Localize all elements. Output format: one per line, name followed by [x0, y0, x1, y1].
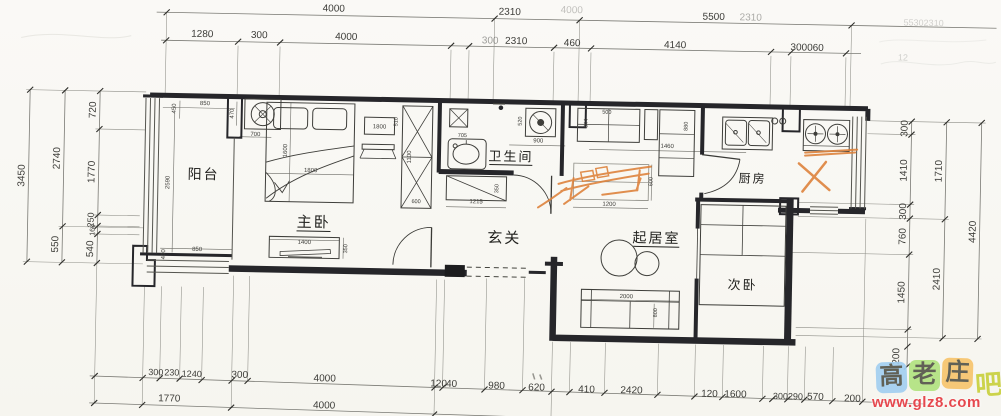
- floor-plan-drawing: 4000231040005500231055302310128030040003…: [0, 0, 1001, 416]
- dimension-label: 510: [394, 117, 400, 126]
- furniture: [241, 99, 850, 333]
- dimension-label: 2310: [499, 7, 522, 18]
- walls: [132, 95, 868, 347]
- dimension-label: 500: [602, 110, 611, 116]
- dimension-label: 300: [482, 35, 499, 46]
- dimension-label: 4000: [313, 400, 336, 411]
- dimension-label: 540: [85, 240, 96, 257]
- dimension-label: 570: [807, 392, 824, 403]
- dimension-label: 450: [172, 103, 178, 114]
- dimension-label: 620: [528, 382, 545, 393]
- dimension-label: 230: [164, 367, 179, 377]
- scan-artifacts: [15, 22, 997, 389]
- dimension-label: 2310: [739, 12, 762, 23]
- dimension-label: 705: [458, 133, 467, 139]
- dimension-label: 300: [148, 367, 163, 377]
- dimension-label: 4000: [561, 5, 584, 16]
- kitchen-sink: [722, 117, 773, 150]
- dimension-label: 720: [88, 101, 99, 118]
- dimension-label: 2740: [52, 147, 63, 170]
- dimension-label: 2410: [931, 267, 942, 290]
- dimension-label: 200: [844, 393, 861, 404]
- dimension-label: 430: [161, 249, 167, 260]
- room-label: 起居室: [632, 229, 680, 246]
- dimension-label: 850: [192, 247, 203, 253]
- column-filled: [445, 265, 465, 277]
- room-label: 玄关: [487, 230, 521, 248]
- room-label: 厨房: [738, 170, 766, 186]
- dimension-label: 4000: [323, 3, 346, 14]
- double-bed: [265, 102, 355, 203]
- dimension-label: 900: [533, 138, 544, 144]
- dimension-label: 300: [898, 203, 909, 220]
- dimension-label: 800: [653, 308, 659, 317]
- dimension-label: 4000: [335, 32, 358, 43]
- dimension-label: 2420: [620, 385, 643, 396]
- dimension-label: 5500: [702, 12, 725, 23]
- room-label-underline: [489, 165, 532, 166]
- dimension-label: 1215: [469, 199, 483, 205]
- dimension-label: 644: [584, 119, 590, 128]
- room-label-underline: [633, 246, 679, 247]
- room-label: 主卧: [297, 214, 331, 232]
- room-label-underline: [297, 231, 331, 232]
- dimension-label: 1710: [934, 160, 945, 183]
- dimension-label: 4420: [967, 220, 978, 243]
- dimension-label: 3450: [16, 164, 27, 187]
- dimension-label: 300060: [790, 42, 824, 54]
- dimension-label: 410: [578, 384, 595, 395]
- dimension-label: 1800: [304, 168, 318, 174]
- dimension-label: 880: [684, 122, 690, 131]
- scanned-floor-plan-page: 4000231040005500231055302310128030040003…: [0, 0, 1001, 416]
- dimension-label: 1410: [899, 159, 910, 182]
- dimension-label: 1600: [283, 143, 289, 157]
- dimension-label: 300: [231, 370, 248, 381]
- shower-shelf: [450, 109, 468, 127]
- dashed-opening: [467, 267, 529, 277]
- washbasin: [448, 139, 487, 170]
- dimension-label: 350: [343, 244, 349, 253]
- room-label: 次卧: [727, 277, 757, 293]
- dimension-label: 760: [897, 228, 908, 245]
- dimension-label: 4000: [313, 373, 336, 384]
- dimension-label: 600: [411, 199, 420, 205]
- dimension-label: 1240: [182, 369, 202, 379]
- dimension-label: 700: [250, 132, 261, 138]
- room-label: 阳台: [187, 166, 219, 183]
- bedside-table: [360, 117, 397, 159]
- dimension-label: 1770: [86, 160, 97, 183]
- watermark-char-zhuang: 庄: [941, 357, 973, 389]
- dimension-label: 980: [488, 381, 505, 392]
- hall-cabinets: [573, 108, 695, 201]
- dimension-label: 470: [230, 108, 236, 119]
- dimension-label: 290: [788, 391, 803, 401]
- room-label: 卫生间: [488, 149, 533, 165]
- dimension-label: 120: [701, 389, 718, 400]
- dimension-label: 55302310: [904, 17, 944, 28]
- dimension-label: 1770: [158, 393, 181, 404]
- dimension-label: 1450: [896, 281, 907, 304]
- watermark-char-gao: 高: [875, 361, 907, 393]
- dimension-label: 1800: [373, 124, 387, 130]
- dimension-label: 300: [899, 120, 910, 137]
- watermark-char-lao: 老: [909, 360, 940, 391]
- dimension-label: 350: [494, 184, 500, 193]
- gas-stove: [803, 120, 850, 152]
- dimension-label: 850: [200, 101, 211, 107]
- dimension-label: 4140: [664, 40, 687, 51]
- washer-top-view: [244, 99, 281, 130]
- dimension-label: 300: [773, 391, 788, 401]
- washing-machine: [525, 108, 556, 137]
- watermark-url: www.glz8.com: [872, 394, 981, 411]
- dimension-label: 1200: [602, 202, 616, 208]
- dimension-label: 300: [251, 30, 268, 41]
- dimension-label: 1280: [191, 29, 214, 40]
- dimension-label: 2000: [620, 294, 634, 300]
- dimension-label: 1100: [407, 150, 413, 164]
- dimension-label: 160: [89, 224, 96, 236]
- dimension-label: 460: [564, 38, 581, 49]
- wardrobe: [401, 106, 433, 209]
- dimension-label: 1460: [660, 144, 674, 150]
- dimension-label: 550: [50, 235, 61, 252]
- windows: [143, 98, 867, 286]
- watermark: 高老庄吧 www.glz8.com: [870, 356, 1001, 416]
- dimension-label: 1600: [724, 389, 747, 400]
- dimension-label: 12: [898, 52, 908, 62]
- dimension-label: 2590: [165, 175, 171, 189]
- dimension-label: 40: [446, 379, 458, 390]
- dimension-label: 1400: [298, 240, 312, 246]
- dimension-label: 600: [648, 177, 654, 186]
- dimension-label: 120: [430, 378, 447, 389]
- dimension-label: 2310: [505, 36, 528, 47]
- dimension-label: 520: [518, 116, 524, 125]
